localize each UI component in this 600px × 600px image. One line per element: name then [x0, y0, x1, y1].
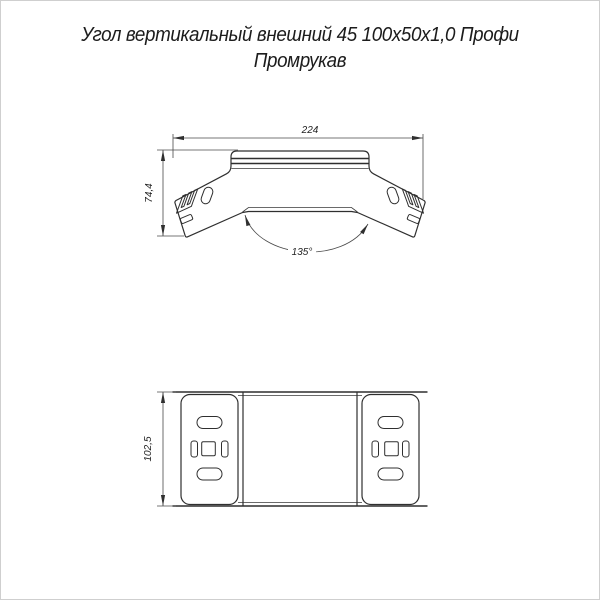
- dim-label-bottom-height: 102,5: [143, 436, 154, 461]
- dim-label-width: 224: [301, 125, 319, 136]
- small-rect-slot: [180, 214, 193, 224]
- dim-label-height: 74,4: [144, 183, 155, 203]
- comb-slot: [177, 189, 198, 213]
- dim-label-angle: 135°: [292, 247, 313, 258]
- connector-wing-right: [362, 395, 419, 505]
- oval-slot: [200, 186, 214, 205]
- narrow-slot-right: [222, 441, 229, 457]
- oval-slot-bottom: [197, 468, 222, 480]
- wing-slots-right: [386, 186, 424, 224]
- dim-angle-135: 135°: [243, 214, 370, 258]
- technical-drawing-svg: 224 74,4 135°: [0, 0, 600, 600]
- connector-wing-left: [181, 395, 238, 505]
- dim-height-1025: 102,5: [143, 392, 176, 506]
- square-slot: [202, 442, 216, 456]
- oval-slot-top: [197, 417, 222, 429]
- wing-slots-left: [177, 186, 215, 224]
- bottom-view: 102,5: [143, 392, 428, 506]
- wing-plate: [181, 395, 238, 505]
- narrow-slot-left: [191, 441, 198, 457]
- drawing-page: Угол вертикальный внешний 45 100х50х1,0 …: [0, 0, 600, 600]
- top-view: 224 74,4 135°: [144, 125, 425, 258]
